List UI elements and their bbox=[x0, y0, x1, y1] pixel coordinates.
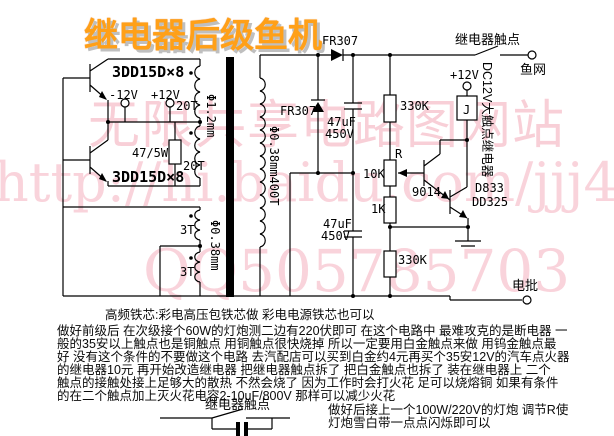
junction-dot bbox=[351, 294, 355, 298]
phase-dot bbox=[189, 256, 193, 260]
resistor-330k-top-label: 330K bbox=[400, 99, 430, 113]
pot-wiper-arrow bbox=[398, 169, 407, 177]
resistor-47-5w-label: 47/5W bbox=[132, 146, 169, 160]
junction-dot bbox=[388, 225, 392, 229]
q3-9014-label: 9014 bbox=[412, 185, 441, 199]
junction-dot bbox=[466, 225, 470, 229]
potentiometer-10k bbox=[384, 160, 396, 186]
phase-dot bbox=[189, 71, 193, 75]
resistor-1k-label: 1K bbox=[371, 202, 386, 216]
resistor-330k-bottom bbox=[384, 251, 396, 277]
footer-contact-symbol bbox=[160, 409, 290, 436]
resistor-330k-bottom-label: 330K bbox=[398, 253, 428, 267]
resistor-47-5w bbox=[169, 140, 181, 164]
junction-dot bbox=[316, 171, 320, 175]
winding-3t-top-label: 3T bbox=[180, 223, 194, 237]
q4-dd325-label: DD325 bbox=[472, 195, 508, 209]
fishnet-terminal bbox=[528, 51, 536, 59]
winding-3t-bottom-label: 3T bbox=[180, 265, 194, 279]
diode-d2-label: FR307 bbox=[280, 104, 316, 118]
relay-type-label: DC12V大触点继电器 bbox=[480, 62, 494, 178]
diode-d1-label: FR307 bbox=[322, 34, 358, 48]
cap-c1-voltage: 450V bbox=[325, 127, 354, 141]
secondary-winding-label: Φ0.38mm400T bbox=[267, 126, 281, 205]
note-line-1: 高频铁芯:彩电高压包铁芯做 彩电电源铁芯也可以 bbox=[105, 309, 374, 322]
cap-c2-voltage: 450V bbox=[321, 229, 350, 243]
adjust-r-label: R bbox=[395, 147, 403, 161]
diode-fr307-series bbox=[331, 49, 343, 61]
rectifier-section: FR307 FR307 47uF 450V 47uF 450V bbox=[260, 34, 475, 298]
q1-emitter-arrow bbox=[99, 91, 107, 100]
snubber-cap-plate bbox=[236, 422, 240, 436]
relay-pos12v-terminal bbox=[463, 82, 471, 90]
footer-tip-line-2: 灯炮雪白带一点点闪烁即可以 bbox=[328, 417, 491, 430]
neg12v-label: -12V bbox=[109, 88, 138, 102]
phase-dot bbox=[189, 131, 193, 135]
fishnet-label: 鱼网 bbox=[520, 62, 546, 77]
page-title: 继电器后级鱼机 bbox=[84, 8, 322, 57]
relay-contact-label: 继电器触点 bbox=[455, 32, 520, 47]
junction-dot bbox=[198, 120, 202, 124]
transformer-core bbox=[226, 57, 234, 297]
schematic-page: 无限共享电路图网站 http://hi.baidu.com/jjj4 QQ505… bbox=[0, 0, 614, 436]
transformer-section: Φ0.38mm400T bbox=[226, 55, 281, 297]
q2-label: 3DD15D×8 bbox=[112, 168, 184, 186]
junction-dot bbox=[351, 53, 355, 57]
winding-20t-bottom-label: 20T bbox=[183, 159, 205, 173]
snubber-cap-plate bbox=[244, 422, 248, 436]
circuit-wires-output bbox=[467, 46, 528, 140]
junction-dot bbox=[351, 171, 355, 175]
junction-dot bbox=[198, 244, 202, 248]
junction-dot bbox=[106, 120, 110, 124]
resistor-1k bbox=[384, 197, 396, 223]
footer-contact-label: 继电器触点 bbox=[205, 398, 270, 411]
q2-emitter-arrow bbox=[99, 173, 107, 182]
feedback-wire-gauge-label: Φ0.38mm bbox=[208, 220, 222, 271]
footer-contact-wires bbox=[160, 409, 290, 429]
secondary-winding-coil bbox=[260, 78, 265, 247]
dianpi-terminal bbox=[523, 296, 531, 304]
winding-20t-top-label: 20T bbox=[176, 99, 198, 113]
relay-coil-label: J bbox=[463, 103, 470, 117]
relay-pos12v-label: +12V bbox=[450, 68, 479, 82]
dianpi-label: 电批 bbox=[512, 278, 538, 293]
primary-wire-gauge-label: Φ1.2mm bbox=[204, 94, 218, 137]
q4-d833-label: D833 bbox=[475, 181, 504, 195]
phase-dot bbox=[189, 214, 193, 218]
relay-output-section: 继电器触点 鱼网 +12V J DC12V大触点继电器 电批 bbox=[450, 32, 546, 304]
q1-label: 3DD15D×8 bbox=[112, 63, 184, 81]
oscillator-section: 3DD15D×8 3DD15D×8 -12V +12V 20T 20T 47/5… bbox=[63, 59, 522, 300]
resistor-330k-top bbox=[384, 95, 396, 122]
q3-emitter-arrow bbox=[441, 191, 449, 199]
pot-10k-label: 10K bbox=[363, 167, 385, 181]
